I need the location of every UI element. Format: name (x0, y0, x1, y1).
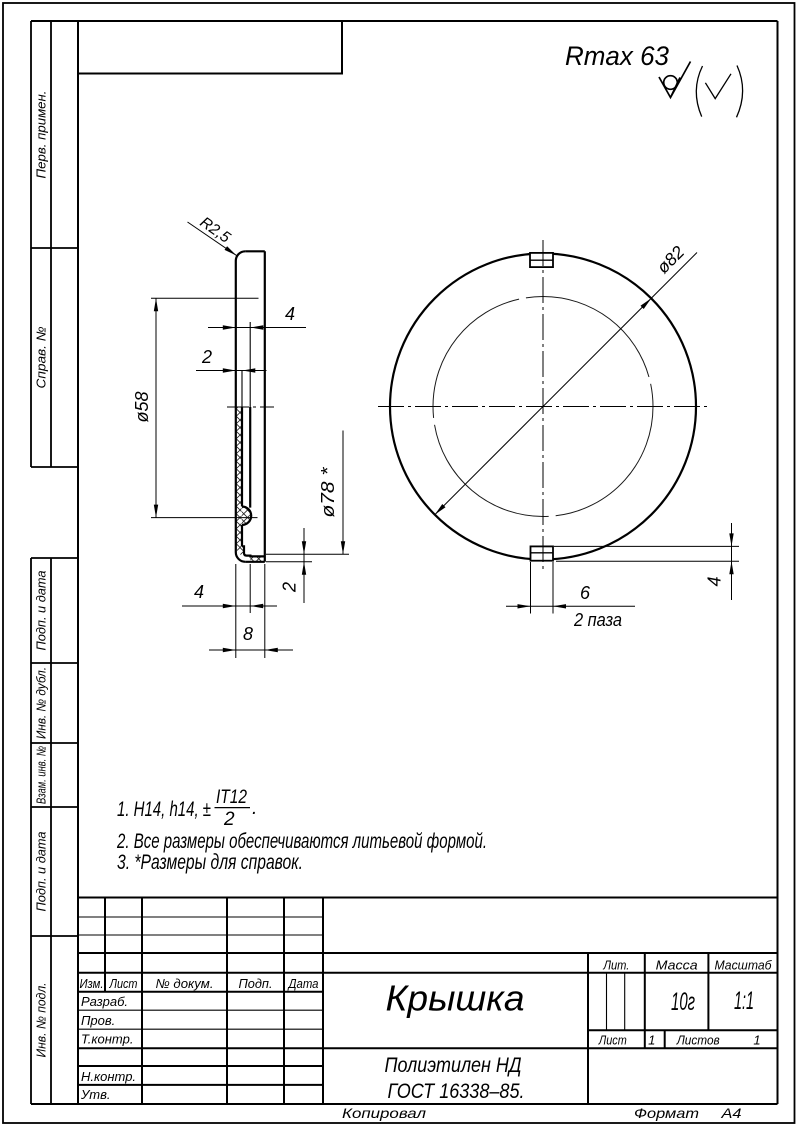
svg-text:Взам. инв. №: Взам. инв. № (34, 746, 49, 804)
svg-text:ø78 *: ø78 * (318, 466, 338, 517)
svg-text:4: 4 (285, 304, 295, 324)
svg-text:Rmax 63: Rmax 63 (565, 41, 669, 71)
svg-text:Разраб.: Разраб. (81, 994, 128, 1009)
svg-text:Подп. и дата: Подп. и дата (34, 832, 49, 912)
svg-text:ø58: ø58 (132, 391, 152, 422)
svg-text:4: 4 (705, 576, 725, 586)
svg-text:А4: А4 (720, 1105, 741, 1121)
svg-text:2: 2 (280, 582, 300, 593)
svg-text:3. *Размеры для справок.: 3. *Размеры для справок. (117, 851, 303, 874)
svg-text:2. Все размеры обеспечиваются: 2. Все размеры обеспечиваются литьевой ф… (116, 830, 487, 853)
svg-text:6: 6 (580, 583, 591, 603)
svg-text:Подп. и дата: Подп. и дата (34, 571, 49, 651)
svg-text:Подп.: Подп. (239, 976, 273, 991)
svg-text:8: 8 (243, 624, 253, 644)
svg-text:Крышка: Крышка (386, 978, 525, 1019)
svg-text:Инв. № дубл.: Инв. № дубл. (34, 667, 49, 739)
svg-text:Изм.: Изм. (80, 976, 104, 991)
svg-text:1: 1 (648, 1033, 655, 1048)
svg-text:Полиэтилен НД: Полиэтилен НД (385, 1054, 522, 1077)
svg-text:IT12: IT12 (216, 787, 247, 808)
svg-text:Инв. № подл.: Инв. № подл. (34, 983, 49, 1058)
svg-text:Масштаб: Масштаб (715, 958, 773, 973)
svg-text:№ докум.: № докум. (156, 976, 214, 991)
svg-text:4: 4 (194, 582, 204, 602)
svg-text:Т.контр.: Т.контр. (81, 1032, 133, 1047)
svg-text:Н.контр.: Н.контр. (81, 1069, 136, 1084)
svg-text:2: 2 (201, 347, 212, 367)
svg-text:Пров.: Пров. (81, 1013, 115, 1028)
svg-text:Масса: Масса (656, 958, 698, 973)
svg-text:10г: 10г (671, 988, 695, 1016)
svg-text:Справ. №: Справ. № (34, 327, 49, 389)
svg-text:1. Н14, h14, ±: 1. Н14, h14, ± (117, 798, 211, 821)
svg-text:Лист: Лист (598, 1033, 627, 1048)
svg-text:2 паза: 2 паза (573, 610, 622, 630)
svg-text:ГОСТ 16338–85.: ГОСТ 16338–85. (388, 1080, 525, 1103)
svg-text:Лит.: Лит. (603, 958, 630, 973)
svg-text:2: 2 (223, 809, 235, 830)
svg-text:Формат: Формат (634, 1105, 699, 1121)
svg-text:Перв. примен.: Перв. примен. (34, 91, 49, 179)
svg-text:Утв.: Утв. (80, 1087, 111, 1102)
svg-text:Листов: Листов (676, 1033, 720, 1048)
svg-text:Копировал: Копировал (342, 1105, 426, 1121)
svg-text:1:1: 1:1 (734, 987, 754, 1015)
svg-text:Лист: Лист (109, 976, 138, 991)
svg-text:1: 1 (753, 1033, 760, 1048)
svg-text:.: . (252, 798, 257, 819)
svg-text:Дата: Дата (287, 976, 319, 991)
